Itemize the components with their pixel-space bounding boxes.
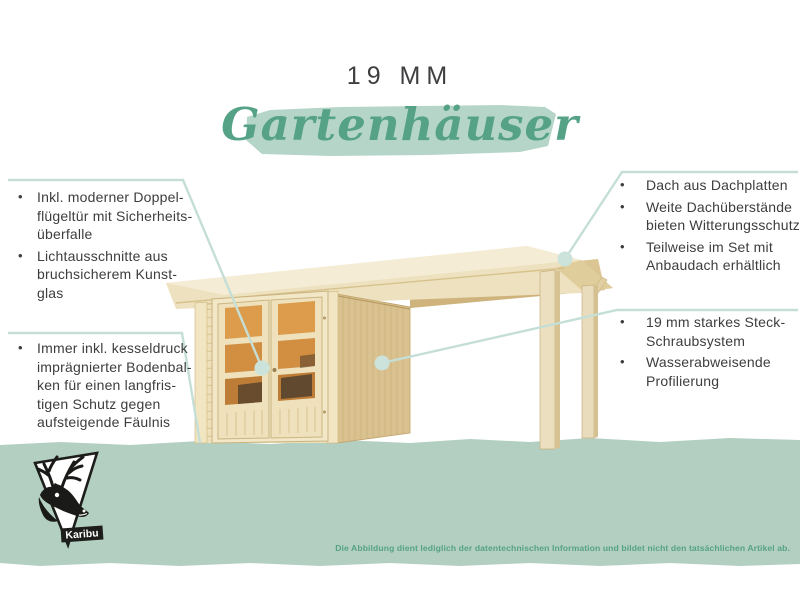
callout-line: Teilweise im Set mit xyxy=(646,238,781,257)
bullet-icon: • xyxy=(620,238,634,275)
page-title: Gartenhäuser xyxy=(100,98,700,151)
callout-line: flügeltür mit Sicherheits- xyxy=(37,207,192,226)
front-post xyxy=(540,270,555,449)
callout-line: glas xyxy=(37,284,177,303)
list-item: • Dach aus Dachplatten xyxy=(620,176,798,195)
callout-line: Weite Dachüberstände xyxy=(646,198,800,217)
callout-left-top: • Inkl. moderner Doppel- flügeltür mit S… xyxy=(18,188,218,305)
callout-line: Dach aus Dachplatten xyxy=(646,176,788,195)
garden-house-illustration xyxy=(166,246,613,449)
callout-line: aufsteigende Fäulnis xyxy=(37,413,192,432)
bullet-icon: • xyxy=(620,176,634,195)
bullet-icon: • xyxy=(620,198,634,235)
list-item: • Immer inkl. kesseldruck imprägnierter … xyxy=(18,339,218,432)
disclaimer-text: Die Abbildung dient lediglich der datent… xyxy=(30,543,790,553)
bullet-icon: • xyxy=(18,247,32,303)
callout-line: 19 mm starkes Steck- xyxy=(646,313,785,332)
list-item: • Wasserabweisende Profilierung xyxy=(620,353,798,390)
callout-line: Anbaudach erhältlich xyxy=(646,256,781,275)
callout-right-bottom: • 19 mm starkes Steck- Schraubsystem • W… xyxy=(620,313,798,393)
callout-line: ken für einen langfris- xyxy=(37,376,192,395)
bullet-icon: • xyxy=(18,188,32,244)
list-item: • 19 mm starkes Steck- Schraubsystem xyxy=(620,313,798,350)
door-handle xyxy=(273,368,277,372)
infographic-page: Karibu 19 MM Gartenhäuser • Inkl. modern… xyxy=(0,0,800,600)
callout-line: Inkl. moderner Doppel- xyxy=(37,188,192,207)
side-wall xyxy=(337,294,410,443)
annex-posts xyxy=(540,270,607,449)
bullet-icon: • xyxy=(620,353,634,390)
callout-line: bieten Witterungsschutz xyxy=(646,216,800,235)
callout-left-bottom: • Immer inkl. kesseldruck imprägnierter … xyxy=(18,339,218,435)
list-item: • Lichtausschnitte aus bruchsicherem Kun… xyxy=(18,247,218,303)
brand-name: Karibu xyxy=(65,527,99,541)
product-thickness-title: 19 MM xyxy=(0,62,800,91)
list-item: • Weite Dachüberstände bieten Witterungs… xyxy=(620,198,798,235)
callout-line: tigen Schutz gegen xyxy=(37,395,192,414)
callout-line: imprägnierter Bodenbal- xyxy=(37,358,192,377)
bullet-icon: • xyxy=(18,339,32,432)
callout-line: überfalle xyxy=(37,225,192,244)
callout-line: Lichtausschnitte aus xyxy=(37,247,177,266)
callout-line: Wasserabweisende xyxy=(646,353,771,372)
callout-line: bruchsicherem Kunst- xyxy=(37,265,177,284)
back-post xyxy=(582,285,594,438)
callout-line: Immer inkl. kesseldruck xyxy=(37,339,192,358)
list-item: • Teilweise im Set mit Anbaudach erhältl… xyxy=(620,238,798,275)
callout-line: Schraubsystem xyxy=(646,332,785,351)
double-door xyxy=(212,291,328,443)
list-item: • Inkl. moderner Doppel- flügeltür mit S… xyxy=(18,188,218,244)
callout-line: Profilierung xyxy=(646,372,771,391)
callout-right-top: • Dach aus Dachplatten • Weite Dachübers… xyxy=(620,176,798,278)
corner-trim-right xyxy=(327,291,338,443)
bullet-icon: • xyxy=(620,313,634,350)
